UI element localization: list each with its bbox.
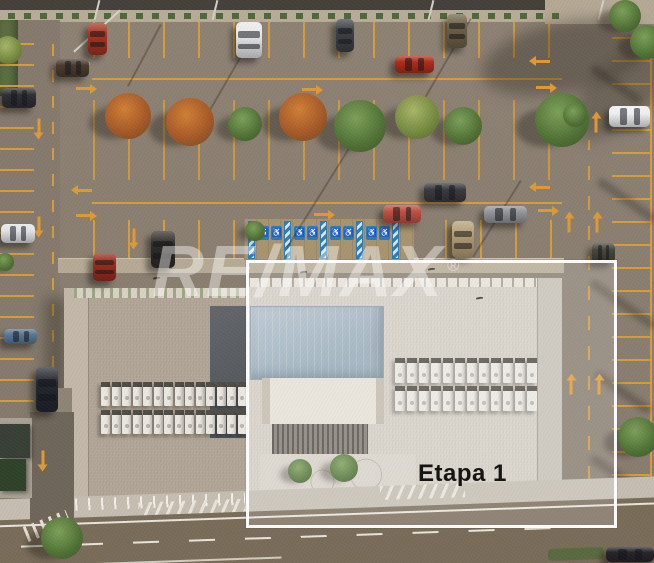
lane-arrow-right xyxy=(314,213,328,216)
rooftop-hvac-unit xyxy=(185,382,194,406)
car-window xyxy=(238,44,260,49)
stall-lines-row-1 xyxy=(60,22,562,58)
rooftop-hvac-unit xyxy=(133,382,142,406)
car-salmon xyxy=(383,205,421,223)
car-dark-3 xyxy=(424,183,466,202)
car-window xyxy=(618,549,627,560)
registered-mark: ® xyxy=(447,256,462,275)
rooftop-hvac-unit xyxy=(196,410,205,434)
rooftop-hvac-unit xyxy=(185,410,194,434)
car-window xyxy=(21,226,26,241)
rooftop-hvac-unit xyxy=(122,382,131,406)
rooftop-hvac-unit xyxy=(175,410,184,434)
car-window xyxy=(76,61,81,75)
car-brown-1 xyxy=(56,59,89,77)
car-red-1 xyxy=(88,23,107,55)
lane-arrow-right xyxy=(536,86,550,89)
tree xyxy=(279,93,327,141)
rooftop-hvac-unit xyxy=(143,410,152,434)
car-window xyxy=(90,42,105,47)
rooftop-hvac-unit xyxy=(206,382,215,406)
car-window xyxy=(22,90,27,106)
car-window xyxy=(95,260,114,265)
rooftop-hvac-unit xyxy=(227,410,236,434)
rooftop-hvac-unit xyxy=(217,410,226,434)
car-white-3 xyxy=(1,224,35,243)
remax-brand-text: RE/MAX xyxy=(152,232,444,312)
lane-arrow-up xyxy=(595,119,598,133)
rooftop-hvac-unit xyxy=(101,410,110,434)
rooftop-hvac-unit xyxy=(101,382,110,406)
car-window xyxy=(338,39,352,44)
rooftop-hvac-unit xyxy=(143,382,152,406)
aerial-site-render: ♿♿♿♿♿♿♿♿ Etapa 1 RE/MAX® xyxy=(0,0,654,563)
lane-arrow-right xyxy=(76,214,90,217)
car-window xyxy=(11,90,17,106)
lane-arrow-up xyxy=(568,219,571,233)
car-dark-1 xyxy=(336,19,354,52)
hedge-row xyxy=(8,13,568,19)
car-window xyxy=(405,58,412,71)
lane-arrow-down xyxy=(42,451,45,465)
rooftop-hvac-unit xyxy=(154,382,163,406)
lane-arrow-right xyxy=(538,209,552,212)
lane-arrow-up xyxy=(596,219,599,233)
dumpster xyxy=(0,424,30,458)
tree xyxy=(563,103,587,127)
rooftop-hvac-unit xyxy=(175,382,184,406)
rooftop-hvac-unit xyxy=(154,410,163,434)
rooftop-hvac-unit xyxy=(206,410,215,434)
tree xyxy=(228,107,262,141)
car-van-brown xyxy=(447,14,467,48)
lane-arrow-left xyxy=(536,60,550,63)
rooftop-hvac-unit xyxy=(133,410,142,434)
car-white-1 xyxy=(236,22,262,58)
rooftop-hvac-unit xyxy=(217,382,226,406)
car-window xyxy=(13,331,19,342)
tree xyxy=(334,100,386,152)
rooftop-hvac-unit xyxy=(112,382,121,406)
car-window xyxy=(635,549,642,560)
car-suv-dark xyxy=(2,88,36,108)
tree xyxy=(105,93,151,139)
car-van-dark xyxy=(36,367,58,412)
car-window xyxy=(38,394,56,401)
lane-divider-2 xyxy=(92,202,562,204)
car-window xyxy=(90,31,105,37)
tree xyxy=(41,517,83,559)
rooftop-hvac-unit xyxy=(164,410,173,434)
car-window xyxy=(38,379,56,387)
dumpster xyxy=(0,459,26,491)
lane-arrow-left xyxy=(78,189,92,192)
car-window xyxy=(620,108,627,125)
lane-arrow-right xyxy=(76,87,90,90)
phase-label: Etapa 1 xyxy=(418,460,507,488)
car-window xyxy=(65,61,71,75)
lane-arrow-right xyxy=(302,88,316,91)
lane-arrow-left xyxy=(536,186,550,189)
tree xyxy=(395,95,439,139)
tree xyxy=(166,98,214,146)
rooftop-hvac-unit xyxy=(112,410,121,434)
rooftop-hvac-unit xyxy=(227,382,236,406)
car-window xyxy=(495,208,503,221)
car-gray xyxy=(484,206,527,223)
car-window xyxy=(406,207,412,221)
tree xyxy=(618,417,654,457)
car-window xyxy=(393,207,400,221)
car-window xyxy=(238,31,260,37)
car-window xyxy=(598,245,602,261)
car-white-2 xyxy=(609,106,650,127)
car-window xyxy=(634,108,640,125)
rooftop-hvac-unit xyxy=(122,410,131,434)
car-red-3 xyxy=(93,253,116,281)
car-window xyxy=(24,331,29,342)
remax-watermark: RE/MAX® xyxy=(152,236,462,308)
car-red-2 xyxy=(395,56,434,73)
car-window xyxy=(449,34,465,39)
car-window xyxy=(449,23,465,29)
rooftop-hvac-unit xyxy=(164,382,173,406)
car-window xyxy=(435,185,443,200)
grass-median xyxy=(548,547,604,561)
car-window xyxy=(418,58,424,71)
tree xyxy=(444,107,482,145)
car-blue xyxy=(4,329,37,344)
car-dark-4 xyxy=(606,547,654,562)
lane-arrow-down xyxy=(38,119,41,133)
road-dashed-center-line xyxy=(21,525,621,548)
car-window xyxy=(606,245,609,261)
lane-arrow-down xyxy=(38,217,41,231)
car-window xyxy=(449,185,455,200)
car-window xyxy=(510,208,516,221)
car-window xyxy=(10,226,16,241)
car-window xyxy=(95,270,114,274)
car-window xyxy=(338,28,352,34)
rooftop-hvac-unit xyxy=(196,382,205,406)
lane-arrow-down xyxy=(133,229,136,243)
